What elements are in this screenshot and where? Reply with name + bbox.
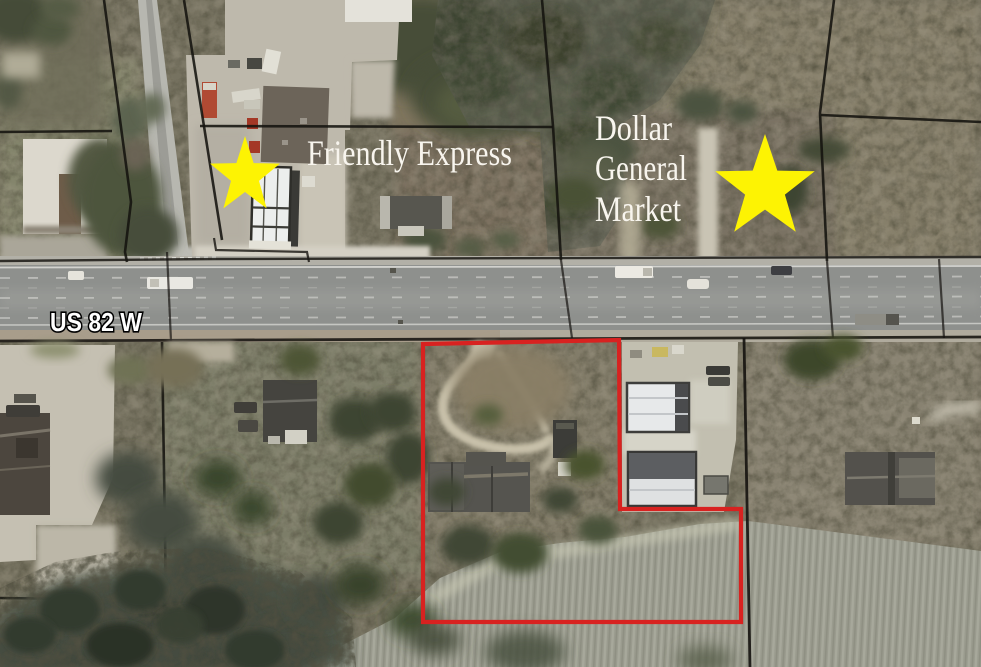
svg-text:General: General bbox=[595, 148, 687, 188]
svg-text:US 82 W: US 82 W bbox=[50, 307, 142, 337]
svg-text:Market: Market bbox=[595, 189, 681, 229]
svg-text:Dollar: Dollar bbox=[595, 108, 672, 148]
svg-text:Friendly Express: Friendly Express bbox=[307, 133, 512, 173]
